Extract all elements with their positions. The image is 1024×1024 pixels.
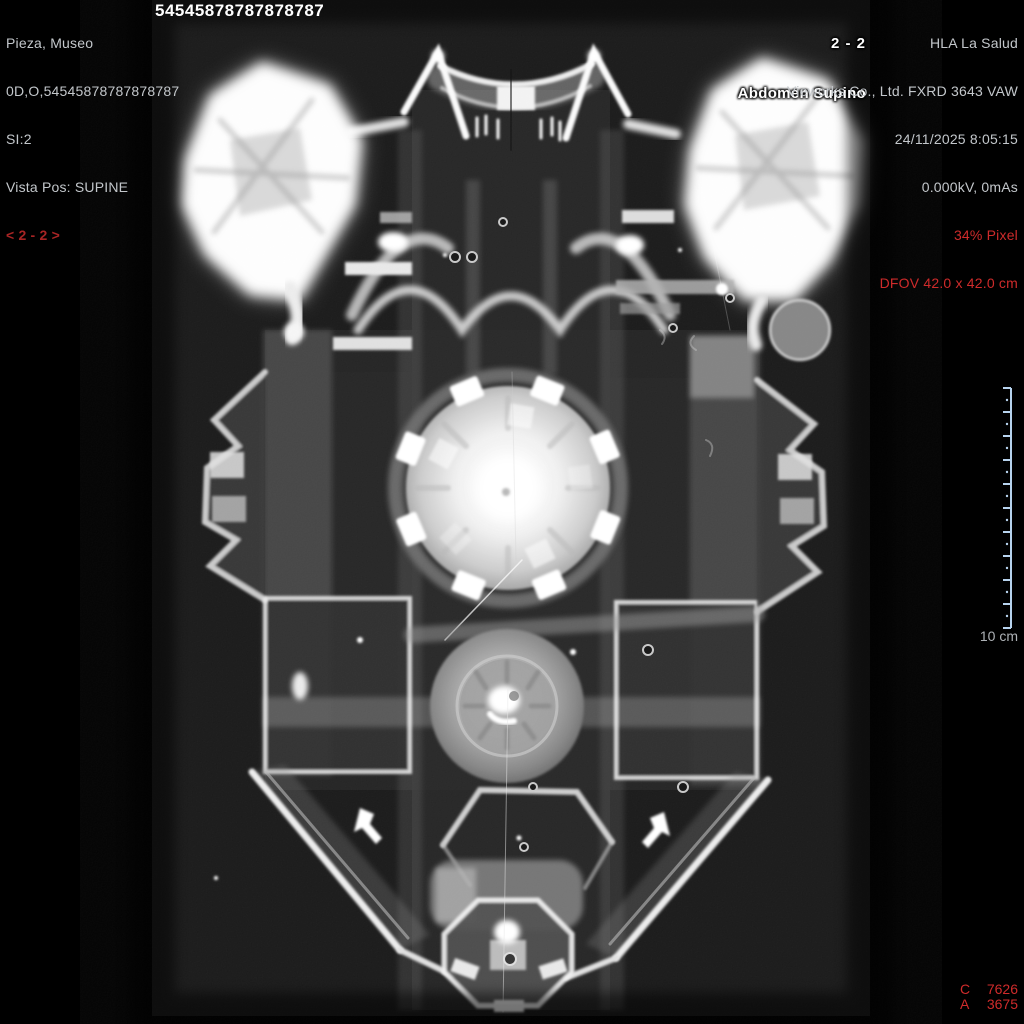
series-navigator[interactable]: < 2 - 2 >	[6, 227, 179, 243]
dicom-viewer: Pieza, Museo 0D,O,54545878787878787 SI:2…	[0, 0, 1024, 1024]
acquisition-datetime: 24/11/2025 8:05:15	[787, 131, 1018, 147]
device-info-block: HLA La Salud Vieworks Co., Ltd. FXRD 364…	[787, 3, 1018, 323]
param-a-value: 3675	[987, 997, 1018, 1012]
accession-number: 54545878787878787	[155, 3, 324, 19]
exposure-params: 0.000kV, 0mAs	[787, 179, 1018, 195]
param-a-row: A 3675	[960, 997, 1018, 1012]
dfov-value: DFOV 42.0 x 42.0 cm	[787, 275, 1018, 291]
series-instance: SI:2	[6, 131, 179, 147]
pixel-zoom: 34% Pixel	[787, 227, 1018, 243]
building-xray	[152, 0, 870, 1016]
patient-id: 0D,O,54545878787878787	[6, 83, 179, 99]
param-c-value: 7626	[987, 982, 1018, 997]
param-c-label: C	[960, 982, 970, 997]
scale-label: 10 cm	[960, 628, 1018, 644]
patient-info-block: Pieza, Museo 0D,O,54545878787878787 SI:2…	[6, 3, 179, 275]
window-values-block: C 7626 A 3675	[960, 982, 1018, 1012]
patient-name: Pieza, Museo	[6, 35, 179, 51]
param-c-row: C 7626	[960, 982, 1018, 997]
scale-ruler-ticks	[1000, 386, 1020, 630]
institution-name: HLA La Salud	[787, 35, 1018, 51]
param-a-label: A	[960, 997, 969, 1012]
device-model: Vieworks Co., Ltd. FXRD 3643 VAW	[787, 83, 1018, 99]
view-position: Vista Pos: SUPINE	[6, 179, 179, 195]
scale-ruler	[1000, 386, 1020, 630]
